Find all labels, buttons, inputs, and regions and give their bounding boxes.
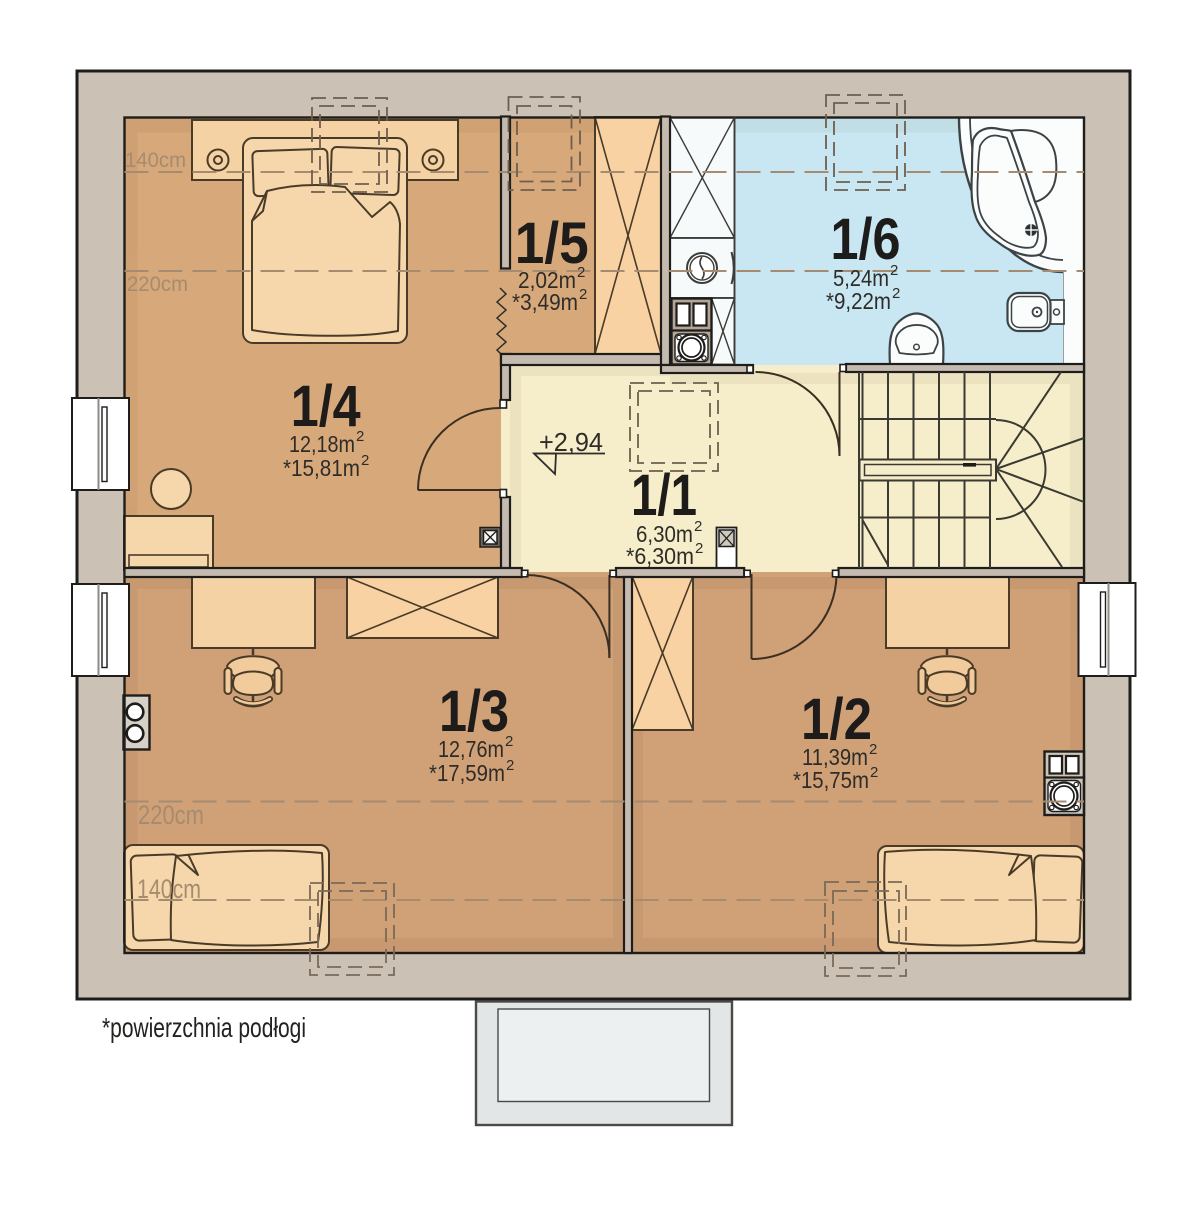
svg-text:*15,81m: *15,81m xyxy=(283,455,360,481)
svg-text:2: 2 xyxy=(870,764,878,781)
svg-text:2: 2 xyxy=(361,452,369,469)
svg-text:2: 2 xyxy=(505,733,513,750)
svg-text:12,76m: 12,76m xyxy=(438,736,504,762)
svg-text:2: 2 xyxy=(506,757,514,774)
svg-text:140cm: 140cm xyxy=(137,874,201,904)
svg-text:2: 2 xyxy=(890,262,898,279)
svg-text:2: 2 xyxy=(577,264,585,281)
svg-text:220cm: 220cm xyxy=(127,273,188,296)
svg-text:2: 2 xyxy=(579,286,587,303)
svg-text:2: 2 xyxy=(869,741,877,758)
svg-text:1/4: 1/4 xyxy=(291,374,361,439)
svg-text:220cm: 220cm xyxy=(138,800,204,830)
svg-text:2: 2 xyxy=(695,540,703,557)
svg-text:*6,30m: *6,30m xyxy=(626,543,694,569)
svg-text:12,18m: 12,18m xyxy=(289,431,355,457)
svg-text:1/3: 1/3 xyxy=(439,679,509,744)
svg-text:2: 2 xyxy=(694,518,702,535)
svg-text:2: 2 xyxy=(356,428,364,445)
svg-text:1/1: 1/1 xyxy=(631,463,697,528)
svg-text:2: 2 xyxy=(892,285,900,302)
svg-text:*powierzchnia podłogi: *powierzchnia podłogi xyxy=(102,1012,306,1043)
svg-text:*15,75m: *15,75m xyxy=(793,767,869,793)
svg-text:*17,59m: *17,59m xyxy=(429,760,505,786)
svg-text:*9,22m: *9,22m xyxy=(826,288,891,314)
svg-text:*3,49m: *3,49m xyxy=(512,289,578,315)
svg-text:1/2: 1/2 xyxy=(801,687,872,752)
svg-text:+2,94: +2,94 xyxy=(539,427,603,457)
svg-text:140cm: 140cm xyxy=(125,149,186,172)
